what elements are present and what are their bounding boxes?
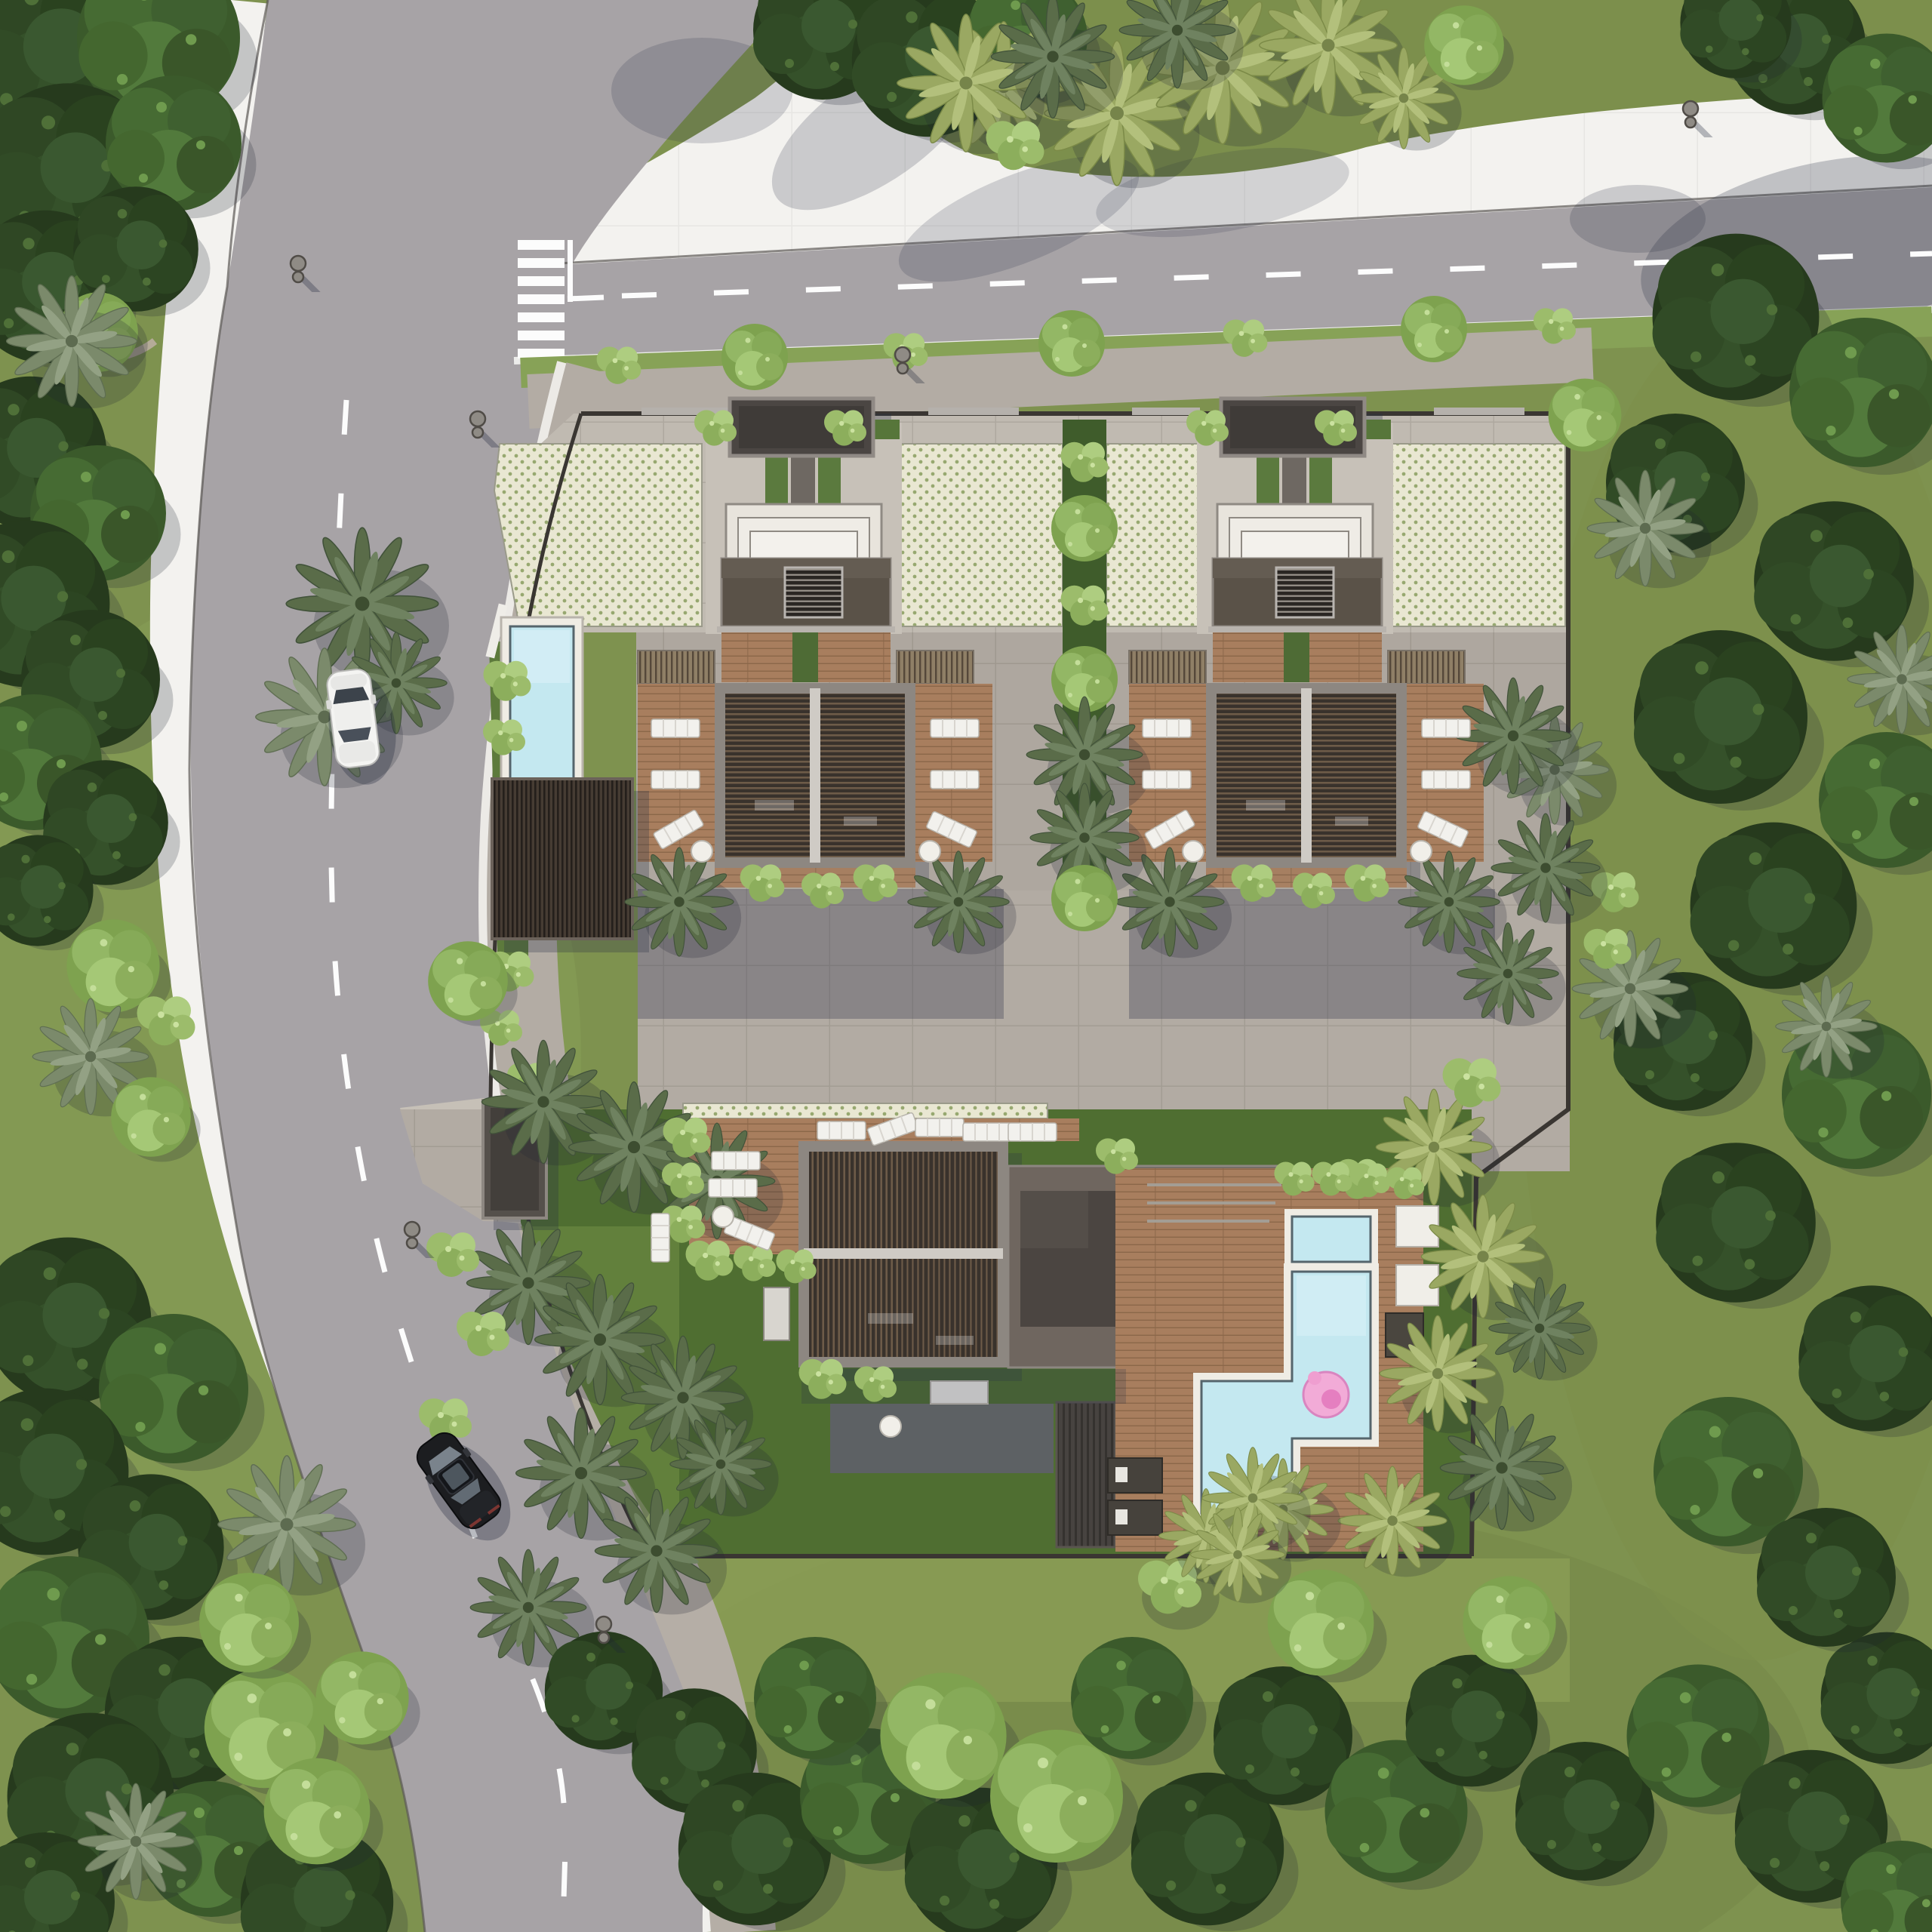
- pergola-center-rail: [810, 688, 820, 863]
- sun-lounger[interactable]: [1008, 1123, 1057, 1141]
- flamingo-float-head: [1308, 1371, 1321, 1385]
- sun-lounger[interactable]: [1143, 771, 1191, 789]
- light-tree: [1038, 310, 1105, 377]
- round-table[interactable]: [1411, 841, 1432, 862]
- pergola-center-rail: [1301, 688, 1312, 863]
- lounger-pillow: [1115, 1509, 1128, 1524]
- frame-strip: [1208, 626, 1386, 632]
- centerline-solid-junction: [568, 297, 604, 299]
- grass-paver-pad[interactable]: [900, 444, 1063, 626]
- furniture-hint: [844, 817, 877, 826]
- side-wing-slats: [897, 651, 974, 684]
- sun-lounger[interactable]: [651, 719, 700, 737]
- round-table[interactable]: [919, 841, 940, 862]
- sun-lounger[interactable]: [1422, 719, 1470, 737]
- crosswalk-stripe: [518, 294, 565, 304]
- light-tree: [199, 1573, 299, 1672]
- bbq-counter: [764, 1287, 789, 1340]
- sun-lounger[interactable]: [931, 719, 979, 737]
- frame-strip: [717, 626, 895, 632]
- dark-tree: [1656, 1143, 1816, 1303]
- light-tree: [1549, 379, 1622, 452]
- villa-south-shadow: [801, 1369, 1126, 1404]
- sun-lounger[interactable]: [931, 771, 979, 789]
- mid-tree: [1789, 318, 1932, 467]
- sun-lounger[interactable]: [1143, 719, 1191, 737]
- furniture-hint: [755, 800, 794, 811]
- light-tree: [264, 1758, 371, 1865]
- roof-panel-small: [1020, 1191, 1088, 1248]
- crosswalk-stripe: [518, 240, 565, 250]
- mid-tree: [754, 1637, 876, 1759]
- sun-lounger[interactable]: [915, 1118, 964, 1137]
- crosswalk-stripe: [518, 312, 565, 322]
- dark-tree: [1690, 823, 1857, 989]
- deck-center-planter: [792, 632, 818, 682]
- light-tree: [1051, 865, 1118, 931]
- side-wing-slats: [1388, 651, 1465, 684]
- pool-sq-water[interactable]: [1292, 1217, 1371, 1262]
- rear-terrace-dark: [830, 1404, 1054, 1473]
- sun-lounger[interactable]: [963, 1123, 1011, 1141]
- furniture-hint: [936, 1336, 974, 1345]
- deck-center-planter: [1284, 632, 1309, 682]
- south-wing-ribbed: [1057, 1402, 1115, 1547]
- sun-lounger[interactable]: [1422, 771, 1470, 789]
- lounger-pillow: [1115, 1467, 1128, 1482]
- light-tree: [880, 1672, 1006, 1798]
- light-tree: [721, 324, 788, 390]
- mid-tree: [1071, 1637, 1193, 1759]
- roof-louver-vent: [1276, 568, 1334, 617]
- crosswalk-stripe: [518, 258, 565, 268]
- light-tree: [111, 1077, 191, 1157]
- side-wing-slats: [1129, 651, 1206, 684]
- crosswalk-stripe: [518, 276, 565, 286]
- dark-tree: [1634, 630, 1807, 804]
- crosswalk-stripe: [518, 331, 565, 340]
- sun-lounger[interactable]: [709, 1179, 757, 1197]
- grass-paver-strip-south-villa: [683, 1103, 1048, 1118]
- light-tree: [428, 941, 508, 1021]
- furniture-hint: [868, 1313, 913, 1324]
- light-tree: [1401, 296, 1467, 362]
- sun-lounger[interactable]: [651, 771, 700, 789]
- fence-cap: [1434, 408, 1524, 415]
- scene-layers-root: [0, 0, 1932, 1932]
- site-plan-rendering: [0, 0, 1932, 1932]
- grass-paver-pad[interactable]: [1390, 444, 1565, 626]
- side-wing-slats: [638, 651, 715, 684]
- light-tree: [315, 1651, 408, 1744]
- carport-slatted: [492, 779, 632, 939]
- dark-tree: [1754, 501, 1914, 661]
- furniture-hint: [1335, 817, 1368, 826]
- round-table[interactable]: [880, 1416, 901, 1437]
- light-tree: [1424, 5, 1504, 85]
- fence-cap: [928, 408, 1019, 415]
- entry-terrace-step: [1241, 531, 1349, 558]
- round-table[interactable]: [691, 841, 712, 862]
- grass-paver-pad[interactable]: [494, 444, 702, 626]
- tree-shadow-on-road: [1570, 185, 1706, 253]
- roof-louver-vent: [785, 568, 842, 617]
- sun-lounger[interactable]: [712, 1152, 760, 1170]
- round-table[interactable]: [1183, 841, 1204, 862]
- pergola-center-rail: [804, 1248, 1003, 1259]
- light-tree: [1051, 495, 1118, 561]
- flamingo-float-body: [1321, 1389, 1341, 1409]
- sun-lounger[interactable]: [817, 1121, 866, 1140]
- stop-line: [568, 240, 573, 302]
- aerial-render-canvas: [0, 0, 1932, 1932]
- dark-tree: [1757, 1508, 1896, 1647]
- sun-lounger[interactable]: [651, 1214, 669, 1262]
- pool-highlight: [1297, 1275, 1366, 1336]
- furniture-hint: [1246, 800, 1285, 811]
- round-table[interactable]: [712, 1206, 734, 1227]
- grass-paver-pad[interactable]: [1106, 444, 1200, 626]
- entry-terrace-step: [750, 531, 857, 558]
- light-tree: [1463, 1576, 1555, 1669]
